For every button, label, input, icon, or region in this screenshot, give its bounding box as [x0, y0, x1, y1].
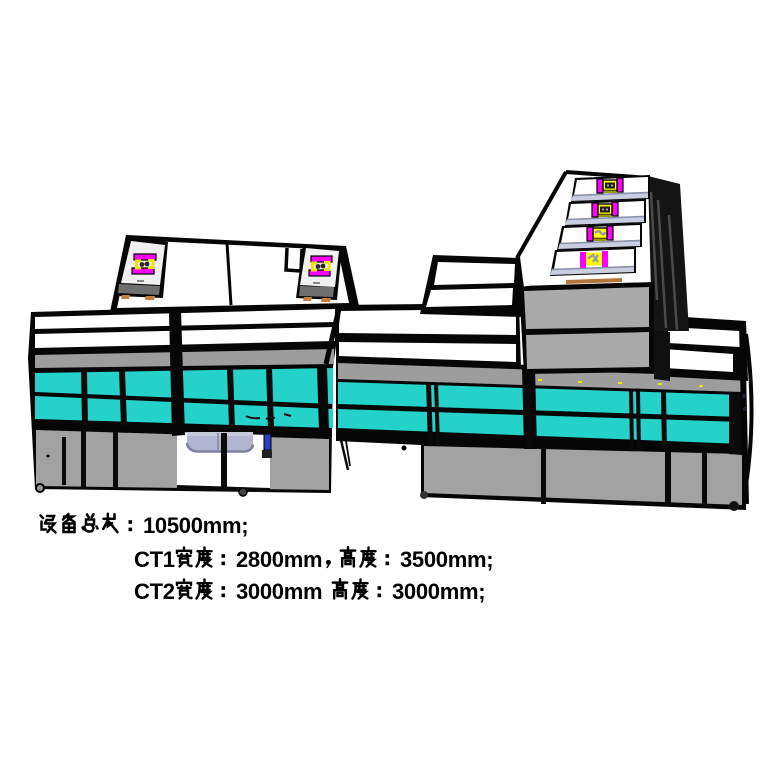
- svg-text:CT1: CT1: [134, 547, 175, 572]
- svg-text:2800mm: 2800mm: [236, 547, 322, 572]
- svg-text:3000mm: 3000mm: [236, 579, 322, 604]
- svg-text:CT2: CT2: [134, 579, 175, 604]
- svg-text:3000mm;: 3000mm;: [392, 579, 485, 604]
- svg-text:3500mm;: 3500mm;: [400, 547, 493, 572]
- svg-text:10500mm;: 10500mm;: [143, 513, 248, 538]
